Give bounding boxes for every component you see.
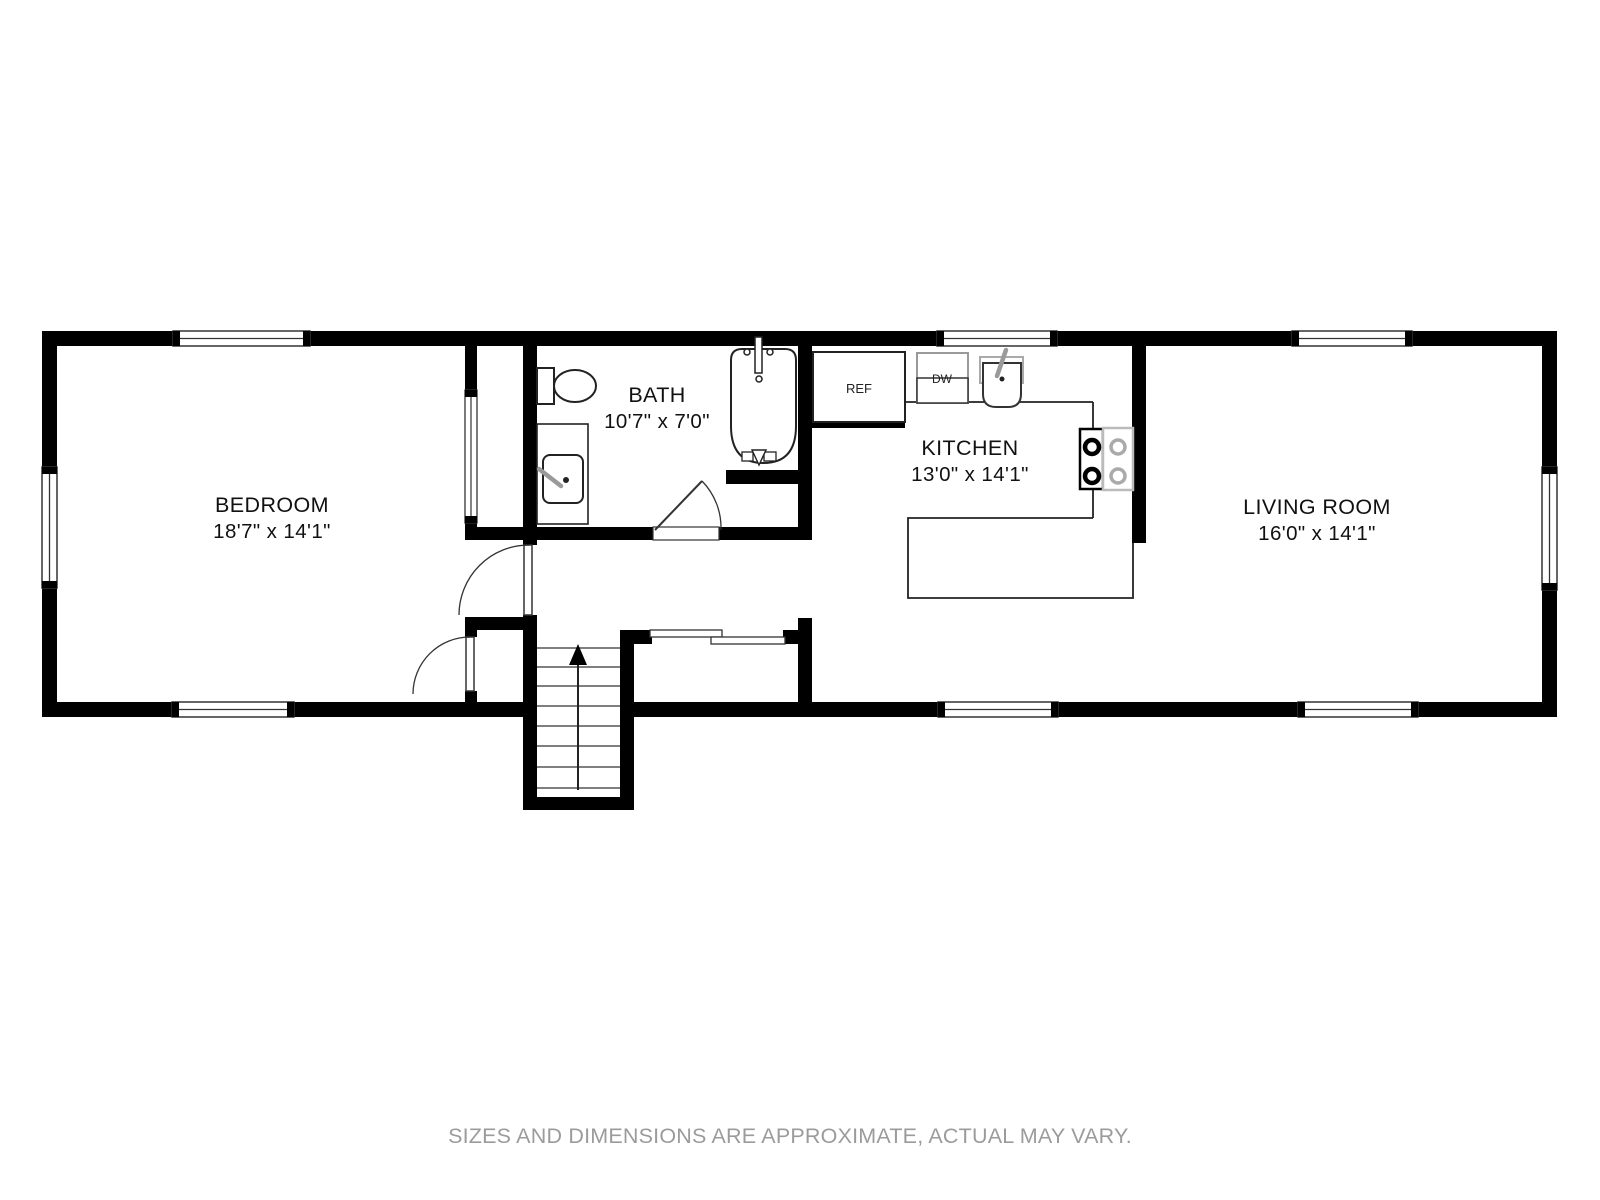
window-bedroom-top-icon xyxy=(173,331,310,346)
wall-slider-stub-right xyxy=(783,630,812,644)
window-bedroom-bottom-icon xyxy=(172,702,294,717)
kitchen-sink-icon xyxy=(980,350,1023,407)
bedroom-label: BEDROOM xyxy=(215,493,329,517)
wall-slider-stub-left xyxy=(634,630,652,644)
bath-dimensions: 10'7" x 7'0" xyxy=(604,410,710,433)
bath-label: BATH xyxy=(628,383,685,407)
toilet-icon xyxy=(537,368,596,404)
window-kitchen-bottom-icon xyxy=(938,702,1058,717)
sliding-closet-door-icon xyxy=(650,630,785,644)
dishwasher-label: DW xyxy=(932,372,953,386)
wall-stairs-right xyxy=(620,630,634,810)
door-closet-icon xyxy=(413,637,474,694)
stairs-up-arrow xyxy=(569,644,587,665)
window-living-top-icon xyxy=(1292,331,1412,346)
wall-closet-door-stub-bottom xyxy=(465,691,477,702)
refrigerator-label: REF xyxy=(846,381,872,396)
kitchen-dimensions: 13'0" x 14'1" xyxy=(911,463,1029,486)
stairs-up-icon xyxy=(537,644,620,790)
living-room-dimensions: 16'0" x 14'1" xyxy=(1258,522,1376,545)
kitchen-label: KITCHEN xyxy=(921,436,1018,460)
dishwasher-icon: DW xyxy=(917,353,968,403)
wall-bath-right xyxy=(798,346,812,540)
floor-plan-drawing: REF DW xyxy=(0,0,1600,1200)
living-room-label: LIVING ROOM xyxy=(1243,495,1391,519)
wall-closet-door-stub-top xyxy=(465,630,477,637)
door-bath-icon xyxy=(653,481,721,540)
vanity-sink-icon xyxy=(537,424,588,524)
window-living-right-icon xyxy=(1542,467,1557,590)
wall-closet-top xyxy=(465,617,537,630)
disclaimer-text: SIZES AND DIMENSIONS ARE APPROXIMATE, AC… xyxy=(448,1124,1132,1148)
floor-plan-page: REF DW xyxy=(0,0,1600,1200)
wall-stairs-bottom xyxy=(523,797,634,810)
stove-icon xyxy=(1080,428,1133,490)
bedroom-dimensions: 18'7" x 14'1" xyxy=(213,520,331,543)
window-kitchen-top-icon xyxy=(937,331,1057,346)
door-bedroom-icon xyxy=(459,545,537,615)
window-bedroom-left-icon xyxy=(42,467,57,588)
wall-bath-bottom xyxy=(465,527,812,540)
window-bedroom-interior-opening-icon xyxy=(465,390,477,523)
refrigerator-icon: REF xyxy=(813,352,905,422)
walls xyxy=(42,331,1557,810)
bathtub-icon xyxy=(731,337,796,465)
window-living-bottom-icon xyxy=(1298,702,1418,717)
